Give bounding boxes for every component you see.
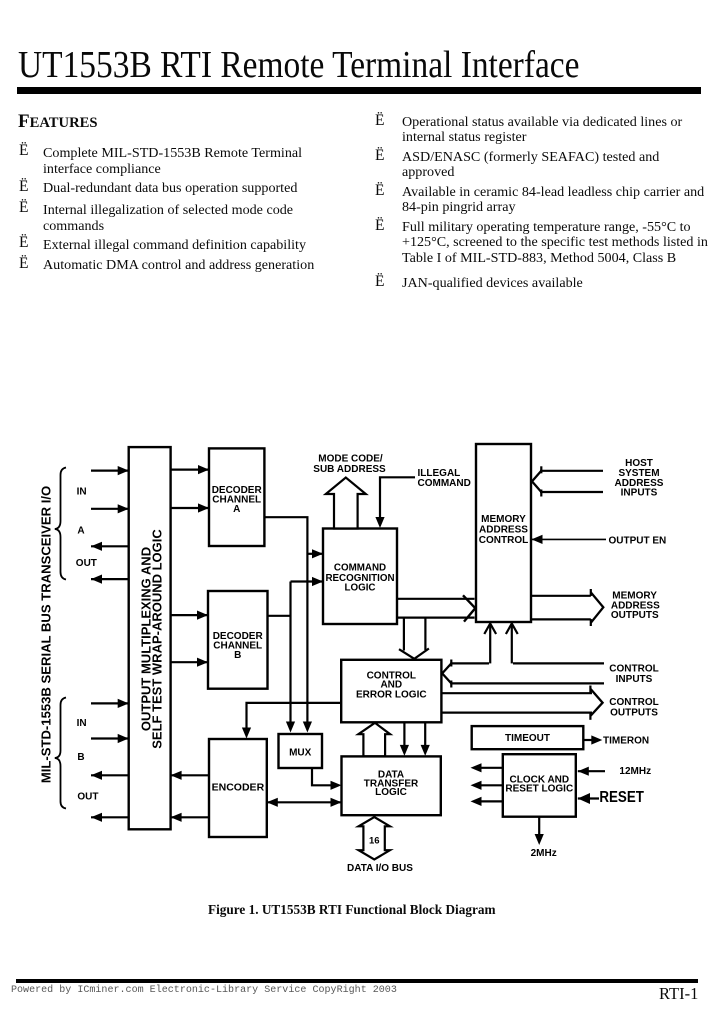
svg-text:OUT: OUT (76, 558, 97, 569)
svg-text:LOGIC: LOGIC (344, 583, 375, 594)
svg-text:CONTROL: CONTROL (479, 535, 528, 546)
svg-text:SELF TEST WRAP-AROUND LOGIC: SELF TEST WRAP-AROUND LOGIC (149, 529, 164, 749)
svg-text:OUTPUTS: OUTPUTS (611, 610, 659, 621)
svg-text:MEMORY: MEMORY (481, 514, 526, 525)
svg-text:COMMAND: COMMAND (418, 478, 471, 489)
svg-text:ENCODER: ENCODER (212, 782, 265, 794)
svg-text:LOGIC: LOGIC (375, 787, 407, 798)
svg-text:RESET: RESET (599, 789, 644, 806)
svg-text:A: A (233, 504, 240, 515)
svg-text:INPUTS: INPUTS (616, 674, 653, 685)
svg-text:MODE CODE/: MODE CODE/ (318, 454, 383, 465)
svg-text:ADDRESS: ADDRESS (479, 525, 528, 536)
svg-text:TIMERON: TIMERON (603, 736, 649, 747)
svg-text:16: 16 (369, 836, 380, 847)
svg-text:OUT: OUT (77, 791, 98, 802)
svg-text:OUTPUTS: OUTPUTS (610, 708, 658, 719)
svg-text:SUB ADDRESS: SUB ADDRESS (313, 464, 386, 475)
svg-text:IN: IN (77, 486, 87, 497)
svg-text:B: B (234, 650, 241, 661)
svg-text:OUTPUT EN: OUTPUT EN (609, 536, 667, 547)
svg-text:RESET LOGIC: RESET LOGIC (505, 784, 573, 795)
svg-text:INPUTS: INPUTS (621, 488, 658, 499)
svg-text:B: B (77, 752, 84, 763)
svg-text:ERROR LOGIC: ERROR LOGIC (356, 689, 427, 700)
svg-text:IN: IN (77, 718, 87, 729)
svg-text:A: A (77, 525, 84, 536)
svg-text:CONTROL: CONTROL (609, 697, 658, 708)
svg-text:TIMEOUT: TIMEOUT (505, 733, 550, 744)
svg-text:DATA I/O BUS: DATA I/O BUS (347, 863, 413, 874)
svg-text:12MHz: 12MHz (619, 766, 651, 777)
svg-text:MUX: MUX (289, 748, 312, 759)
svg-text:MIL-STD-1553B SERIAL BUS TRANS: MIL-STD-1553B SERIAL BUS TRANSCEIVER I/O (39, 486, 54, 783)
svg-text:2MHz: 2MHz (531, 848, 557, 859)
